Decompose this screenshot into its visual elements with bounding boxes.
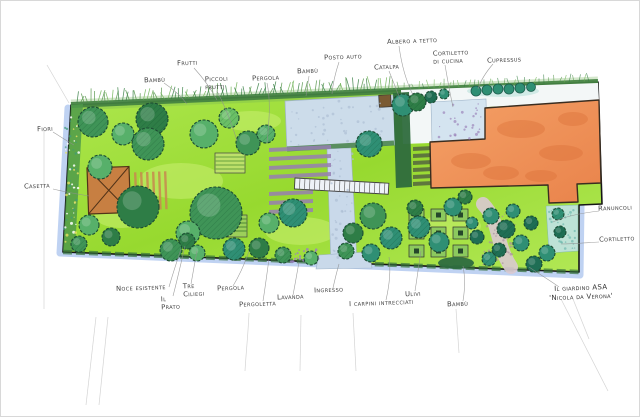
plan-drawing	[1, 1, 640, 417]
gate-structure	[379, 95, 392, 108]
bamboo-clump	[438, 257, 474, 269]
garden-plan-canvas: Il giardino ASA 'Nicola da Verona' Bambù…	[0, 0, 640, 417]
